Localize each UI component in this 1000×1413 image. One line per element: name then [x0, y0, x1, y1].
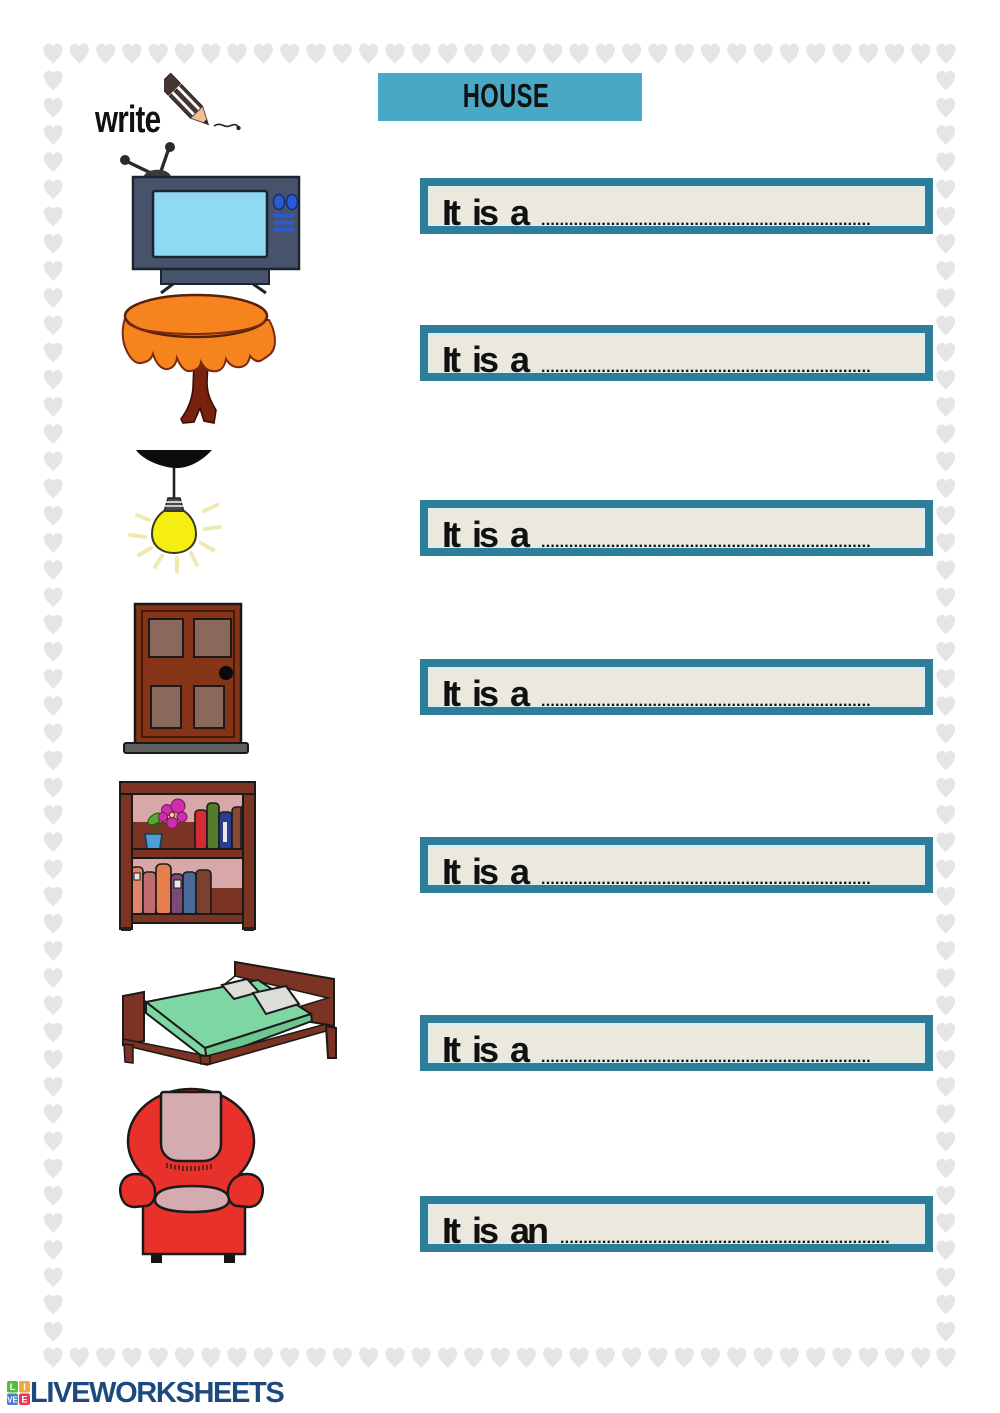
- svg-text:I: I: [23, 1382, 26, 1392]
- svg-text:L: L: [10, 1382, 16, 1392]
- svg-text:VE: VE: [7, 1396, 18, 1405]
- svg-text:E: E: [21, 1395, 27, 1405]
